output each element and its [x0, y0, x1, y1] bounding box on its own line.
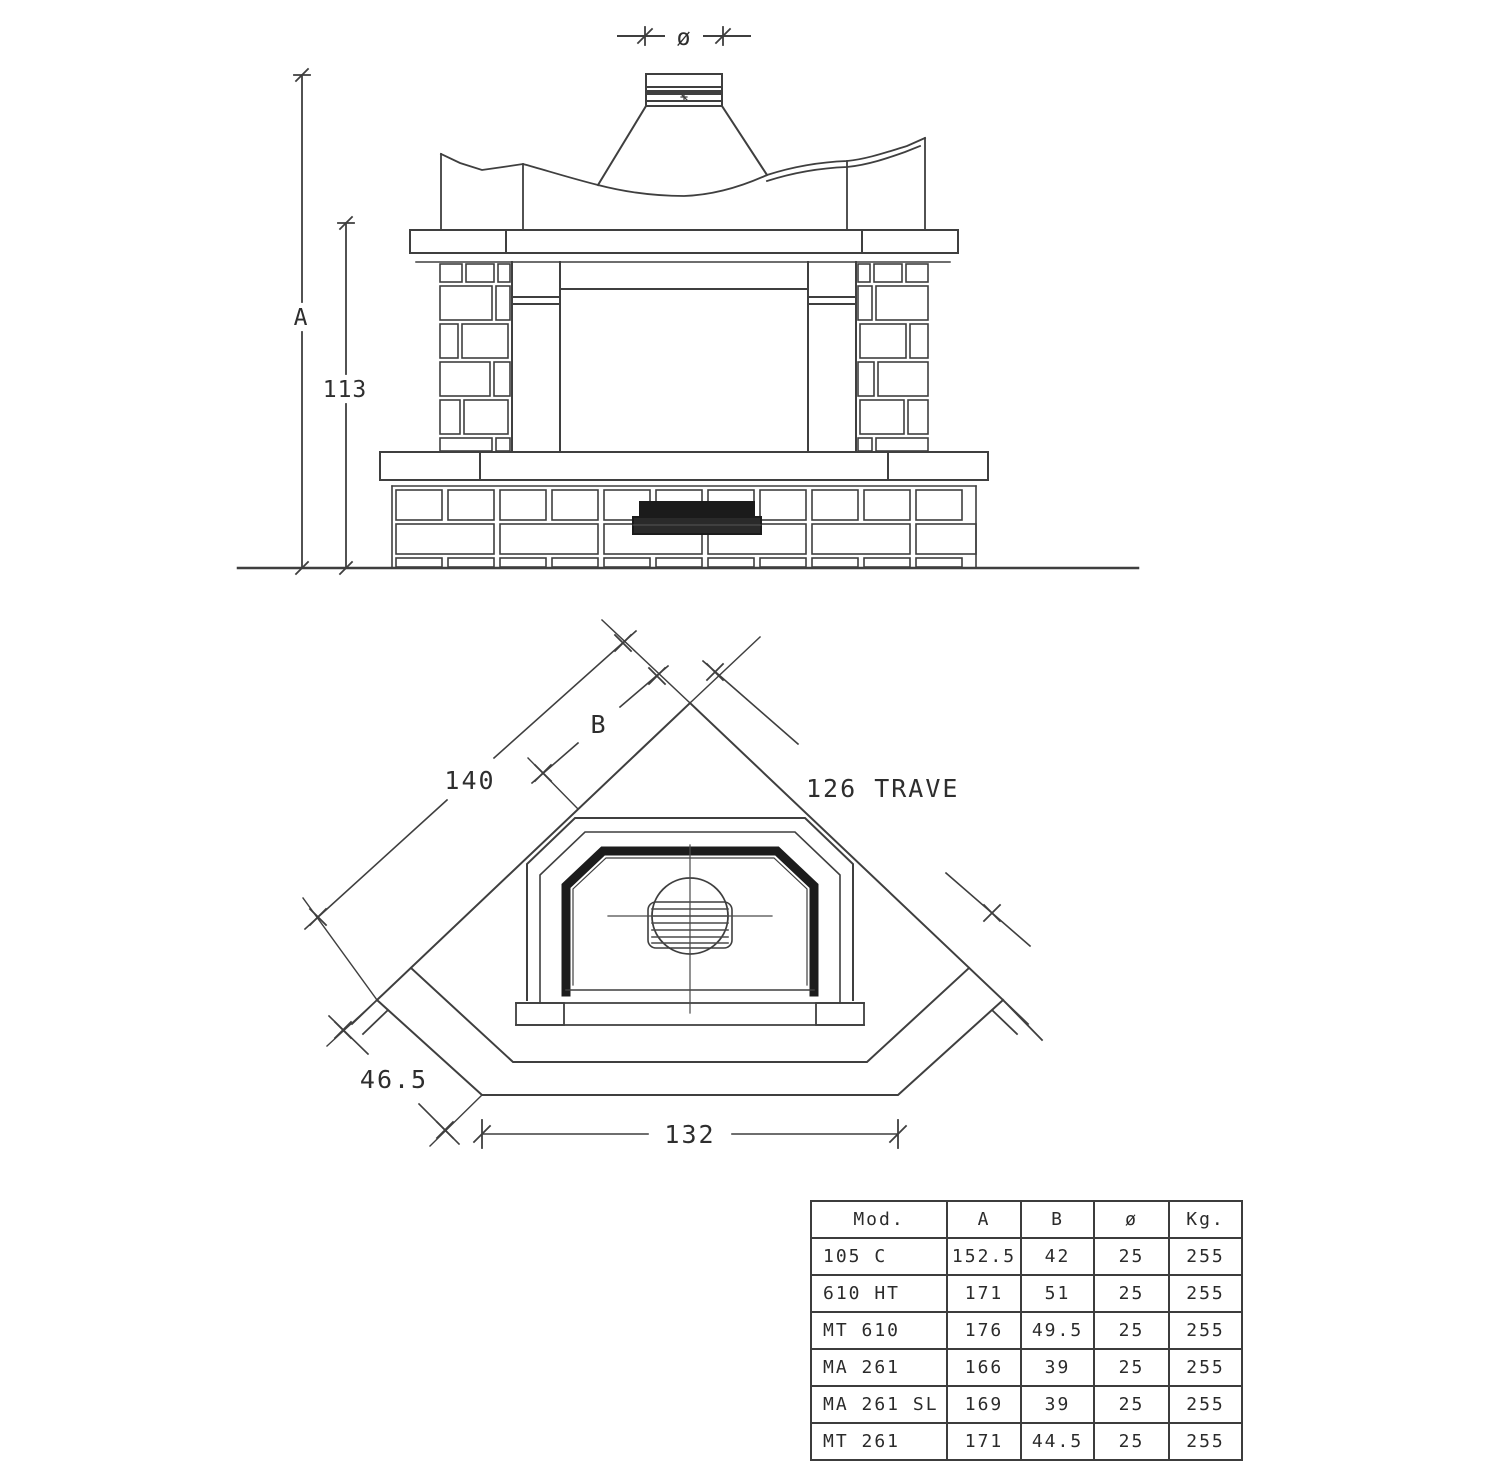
table-cell: 51: [1021, 1275, 1094, 1312]
table-cell: 255: [1169, 1312, 1242, 1349]
table-header-kg: Kg.: [1169, 1201, 1242, 1238]
table-cell-model: MT 261: [811, 1423, 947, 1460]
table-row: 105 C 152.5 42 25 255: [811, 1238, 1242, 1275]
table-cell: 39: [1021, 1349, 1094, 1386]
dim-label-flue-diameter: ø: [677, 25, 692, 51]
pillar-right: [808, 262, 856, 452]
table-cell: 255: [1169, 1275, 1242, 1312]
pillar-left: [512, 262, 560, 452]
brick-column-left: [440, 264, 510, 451]
dim-label-total-height: A: [294, 305, 309, 331]
table-cell: 49.5: [1021, 1312, 1094, 1349]
table-row: MA 261 166 39 25 255: [811, 1349, 1242, 1386]
table-row: 610 HT 171 51 25 255: [811, 1275, 1242, 1312]
table-cell: 255: [1169, 1386, 1242, 1423]
dim-label-beam-length: 126 TRAVE: [806, 774, 959, 803]
smoke-hood: [598, 106, 767, 185]
table-header-mod: Mod.: [811, 1201, 947, 1238]
front-elevation-view: [238, 27, 1138, 574]
table-cell: 171: [947, 1275, 1021, 1312]
dim-label-side-depth: 46.5: [360, 1065, 428, 1094]
table-row: MT 610 176 49.5 25 255: [811, 1312, 1242, 1349]
table-cell: 25: [1094, 1275, 1169, 1312]
wall-end-caps: [352, 1000, 1042, 1040]
table-cell: 166: [947, 1349, 1021, 1386]
table-cell-model: MA 261: [811, 1349, 947, 1386]
table-cell: 25: [1094, 1312, 1169, 1349]
table-cell: 176: [947, 1312, 1021, 1349]
table-cell: 25: [1094, 1349, 1169, 1386]
dimension-side-length: [303, 631, 636, 1000]
table-row-partial: MT 261 171 44.5 25 255: [811, 1423, 1242, 1460]
table-cell: 44.5: [1021, 1423, 1094, 1460]
technical-drawing-page: { "diagram": { "elevation": { "dim_flue_…: [0, 0, 1500, 1427]
table-cell: 255: [1169, 1238, 1242, 1275]
table-cell: 39: [1021, 1386, 1094, 1423]
dimension-beam-length: [703, 661, 1030, 946]
table-cell: 42: [1021, 1238, 1094, 1275]
centerlines: [608, 845, 772, 1013]
table-cell: 255: [1169, 1423, 1242, 1460]
ash-grate-icon: [633, 502, 761, 534]
table-cell: 169: [947, 1386, 1021, 1423]
table-header-a: A: [947, 1201, 1021, 1238]
stone-top-edge: [441, 138, 925, 230]
table-header-diameter: ø: [1094, 1201, 1169, 1238]
table-cell: 25: [1094, 1238, 1169, 1275]
table-cell: 171: [947, 1423, 1021, 1460]
table-cell: 152.5: [947, 1238, 1021, 1275]
table-cell-model: MT 610: [811, 1312, 947, 1349]
table-cell: 255: [1169, 1349, 1242, 1386]
table-cell-model: 610 HT: [811, 1275, 947, 1312]
brick-column-right: [858, 264, 928, 451]
table-header-row: Mod. A B ø Kg.: [811, 1201, 1242, 1238]
table-cell: 25: [1094, 1423, 1169, 1460]
cad-drawing: ø A 113 140 B 126 TRAVE 46.5 132: [0, 0, 1500, 1431]
platform-outline: [377, 1000, 1003, 1095]
chimney-collar-icon: [646, 74, 722, 106]
model-spec-table: Mod. A B ø Kg. 105 C 152.5 42 25 255 610…: [810, 1200, 1243, 1461]
dim-label-beam-b: B: [590, 710, 607, 739]
dim-label-front-width: 132: [664, 1120, 715, 1149]
dim-label-mantel-height: 113: [323, 377, 368, 403]
dim-label-side-length: 140: [444, 766, 495, 795]
mantel-shelf: [410, 230, 958, 262]
table-row: MA 261 SL 169 39 25 255: [811, 1386, 1242, 1423]
hearth-shelf: [380, 452, 988, 486]
table-cell-model: 105 C: [811, 1238, 947, 1275]
table-header-b: B: [1021, 1201, 1094, 1238]
table-cell: 25: [1094, 1386, 1169, 1423]
table-cell-model: MA 261 SL: [811, 1386, 947, 1423]
